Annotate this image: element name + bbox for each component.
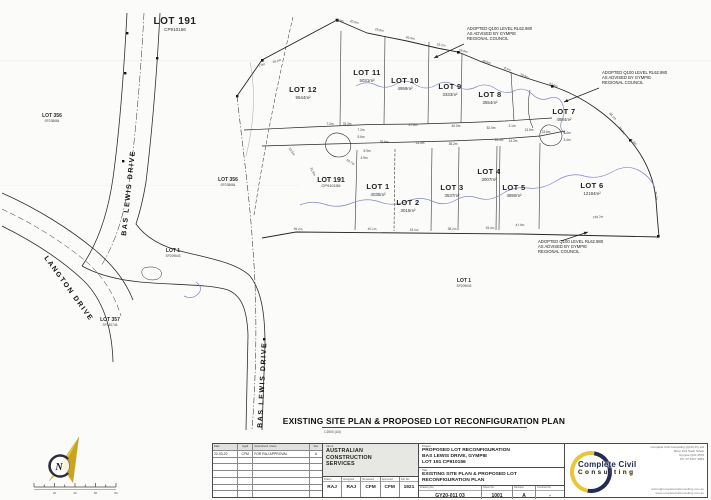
scale-bar	[34, 483, 116, 490]
dimension-label: 40.0m	[452, 124, 461, 128]
road-kerb	[136, 13, 265, 430]
revision-row-empty	[213, 458, 322, 465]
lot-area-label: 3537m²	[445, 193, 460, 198]
title-block: Date Appd Amendment / Issue Rev 22-03-22…	[212, 443, 708, 498]
road-kerb	[2, 226, 113, 362]
personnel-strip: Drawn RAJ Designed RAJ Reviewed CFM Appr…	[323, 476, 418, 497]
dimension-label: 3.4m	[563, 138, 570, 142]
drawing-sheet: LOT 191CP910156LOT 356SP238664LOT 356SP2…	[0, 0, 711, 500]
dimension-label: 20.0m	[349, 19, 359, 25]
dimension-label: 33.4m	[486, 226, 495, 230]
street-name-label: LANGTON DRIVE	[42, 255, 94, 323]
drawing-number-cell: Drawing No. GY20-011 03	[419, 486, 482, 499]
parcel-name-label: LOT 191	[154, 16, 197, 27]
dimension-label: 28.6m	[380, 140, 389, 144]
lot-area-label: 5031m²	[360, 78, 375, 83]
flood-note-text: ADOPTED Q100 LEVEL RL62.980AS ADVISED BY…	[602, 70, 668, 85]
dimension-label: 139.7m	[593, 215, 604, 220]
personnel-drawn: Drawn RAJ	[323, 477, 342, 497]
revision-description: FOR RAJ APPROVAL	[253, 451, 310, 457]
company-wordmark-line1: Complete Civil	[578, 461, 668, 469]
revision-row-empty	[213, 485, 322, 492]
road-kerb	[82, 13, 127, 266]
dimension-label: 14.2m	[509, 139, 518, 143]
dimension-label: 38.2m	[449, 142, 458, 146]
dimension-label: 84.1m	[608, 112, 617, 121]
flood-note-text: ADOPTED Q100 LEVEL RL62.980AS ADVISED BY…	[538, 239, 604, 254]
company-links: admin@completecivilconsulting.com.au www…	[651, 488, 704, 496]
lot-name-label: LOT 6	[580, 181, 603, 190]
dimension-label: 29.9m	[520, 73, 530, 80]
flood-note-text: ADOPTED Q100 LEVEL RL62.980AS ADVISED BY…	[467, 26, 533, 41]
lot-area-label: 3333m²	[443, 92, 458, 97]
dimension-label: 69.2m	[294, 227, 303, 231]
personnel-value: CFM	[381, 482, 399, 490]
dimension-label: 49.5m	[481, 59, 491, 66]
dimension-label: 50.7m	[346, 158, 356, 166]
company-details: Complete Civil Consulting (QLD) Pty Ltd …	[650, 446, 704, 462]
drawing-number-value: GY20-011 03	[419, 491, 481, 499]
contract-value: -	[536, 491, 564, 499]
personnel-job: Job No. 1921	[400, 477, 418, 497]
dimension-label: 33.5m	[416, 141, 425, 145]
revision-row-empty	[213, 478, 322, 485]
revision-table: Date Appd Amendment / Issue Rev 22-03-22…	[213, 444, 323, 497]
stamp-row: Drawing No. GY20-011 03 Sheet No. 1001 R…	[419, 486, 564, 499]
proposed-lot-labels: LOT 129544m²LOT 115031m²LOT 104959m²LOT …	[289, 68, 604, 213]
lot-area-label: 4984m²	[557, 117, 572, 122]
dimension-label: 19.1m	[272, 58, 282, 64]
project-block: Project PROPOSED LOT RECONFIGURATION BAS…	[419, 444, 565, 497]
dimension-label: 45.1m	[368, 227, 377, 231]
dimension-label: 7.2m	[326, 122, 333, 126]
dimension-label: 5.4m	[563, 131, 570, 135]
scan-line	[0, 185, 300, 186]
scale-bar-number: 80	[114, 491, 118, 495]
dimension-label: 7.2m	[357, 128, 364, 132]
scale-bar-number: 60	[94, 491, 98, 495]
subdivision-boundary	[237, 20, 659, 238]
sheet-number-cell: Sheet No. 1001	[482, 486, 513, 499]
revision-approved: CFM	[238, 451, 253, 457]
dimension-label: 47.8m	[409, 123, 418, 127]
street-labels: BAS LEWIS DRIVELANGTON DRIVEBAS LEWIS DR…	[42, 150, 268, 428]
lot-name-label: LOT 10	[391, 76, 419, 85]
lot-name-label: LOT 3	[440, 183, 463, 192]
personnel-value: RAJ	[323, 482, 341, 490]
revision-header-description: Amendment / Issue	[253, 444, 310, 450]
company-detail-line: Ph. 07 5417 4053	[650, 458, 704, 462]
project-cell: Project PROPOSED LOT RECONFIGURATION BAS…	[419, 444, 564, 468]
dimension-label: 7.0m	[258, 62, 266, 68]
revision-header-approved: Appd	[238, 444, 253, 450]
dimension-label: 47.9m	[515, 223, 524, 227]
plan-scale-note: 1:2000 (A3)	[324, 430, 341, 434]
company-wordmark: Complete Civil Consulting	[578, 461, 668, 476]
north-arrow: N	[49, 437, 80, 483]
lot-area-label: 9544m²	[296, 95, 311, 100]
leader-arrowhead	[434, 55, 438, 58]
parcel-plan-number: SP238664	[45, 119, 60, 123]
lot-area-label: 12184m²	[583, 191, 601, 196]
sheet-number-value: 1001	[482, 491, 512, 499]
dimension-label: 14.5m	[495, 138, 504, 142]
lot-name-label: LOT 4	[477, 167, 501, 176]
dimension-label: 29.9m	[374, 27, 384, 33]
lot-name-label: LOT 7	[552, 107, 575, 116]
scale-bar-number: 20	[53, 491, 57, 495]
internal-road-edge	[244, 118, 552, 130]
revision-row: 22-03-22 CFM FOR RAJ APPROVAL A	[213, 451, 322, 458]
lot-name-label: LOT 11	[353, 68, 380, 77]
dimension-label: 52.5m	[288, 147, 297, 157]
street-name-label: BAS LEWIS DRIVE	[257, 342, 269, 428]
personnel-reviewed: Reviewed CFM	[361, 477, 380, 497]
dimension-label: 38.2m	[448, 227, 457, 231]
traffic-island	[142, 267, 162, 280]
contour-line	[246, 62, 253, 156]
lot-area-label: 4035m²	[371, 192, 386, 197]
company-website: www.completecivilconsulting.com.au	[651, 492, 704, 496]
scale-bar-labels: 20406080	[53, 491, 118, 495]
site-plan-canvas: LOT 191CP910156LOT 356SP238664LOT 356SP2…	[0, 0, 711, 500]
client-block: Client AUSTRALIAN CONSTRUCTION SERVICES …	[323, 444, 419, 497]
dimension-label: 3.1m	[508, 124, 515, 128]
road-linework	[2, 13, 265, 430]
existing-parcel-labels: LOT 191CP910156LOT 356SP238664LOT 356SP2…	[42, 16, 472, 327]
revision-header-rev: Rev	[310, 444, 322, 450]
project-line: LOT 191 CP910156	[422, 460, 561, 466]
personnel-value: 1921	[400, 482, 418, 490]
parcel-plan-number: SP209643	[166, 254, 181, 258]
lot-area-label: 4890m²	[507, 193, 522, 198]
parcel-plan-number: SP182746	[103, 323, 118, 327]
dimension-label: 13.5m	[525, 128, 534, 132]
parcel-plan-number: CP910156	[322, 183, 342, 188]
dimension-label: 76.7m	[653, 191, 658, 201]
cadastral-centerline	[237, 96, 256, 430]
leader-line	[564, 88, 599, 102]
client-line: SERVICES	[326, 461, 415, 467]
dimension-label: 78.3m	[343, 122, 352, 126]
dimension-label: 31.9m	[309, 167, 317, 177]
dimension-label: 53.2m	[436, 42, 446, 47]
revision-header-date: Date	[213, 444, 238, 450]
sheet-title-cell: Title EXISTING SITE PLAN & PROPOSED LOT …	[419, 468, 564, 486]
dimension-label: 5.6m	[357, 135, 364, 139]
personnel-designed: Designed RAJ	[342, 477, 361, 497]
sheet-title-line: RECONFIGURATION PLAN	[422, 478, 561, 484]
personnel-approved: Approved CFM	[381, 477, 400, 497]
lot-name-label: LOT 8	[478, 90, 501, 99]
lot-name-label: LOT 2	[396, 198, 419, 207]
revision-row-empty	[213, 491, 322, 497]
company-wordmark-line2: Consulting	[578, 469, 668, 476]
lot-area-label: 3554m²	[483, 100, 498, 105]
culdesac-bulb	[325, 133, 350, 157]
lot-area-label: 3007m²	[482, 177, 497, 182]
survey-markers	[122, 19, 660, 340]
contract-cell: Contract No. -	[536, 486, 564, 499]
dimension-label: 23.6m	[542, 130, 551, 134]
creek-line	[184, 282, 201, 298]
north-arrow-n: N	[54, 462, 63, 473]
leader-arrowhead	[584, 232, 588, 235]
road-kerb	[82, 266, 248, 430]
dimension-label: 49.4m	[405, 35, 415, 41]
scan-line	[0, 61, 711, 62]
dimension-label: 16.1m	[334, 17, 344, 24]
lot-name-label: LOT 12	[289, 85, 317, 94]
client-cell: Client AUSTRALIAN CONSTRUCTION SERVICES	[323, 444, 418, 476]
revision-header-row: Date Appd Amendment / Issue Rev	[213, 444, 322, 451]
lot-name-label: LOT 1	[366, 182, 389, 191]
parcel-plan-number: SP209643	[457, 284, 472, 288]
revision-letter: A	[310, 451, 322, 457]
lot-name-label: LOT 5	[502, 183, 525, 192]
plan-title: EXISTING SITE PLAN & PROPOSED LOT RECONF…	[283, 416, 565, 426]
lot-area-label: 3015m²	[401, 208, 416, 213]
revision-cell: Revision A	[513, 486, 536, 499]
revision-date: 22-03-22	[213, 451, 238, 457]
company-block: Complete Civil Consulting Complete Civil…	[565, 444, 707, 497]
personnel-value: CFM	[361, 482, 379, 490]
internal-road-edge	[262, 131, 565, 146]
lot-area-label: 4959m²	[398, 86, 413, 91]
dimension-label: 4.9m	[360, 156, 367, 160]
scale-bar-number: 40	[73, 491, 77, 495]
dimension-label: 52.0m	[487, 126, 496, 130]
dimension-label: 5.9m	[363, 149, 370, 153]
dimension-label: 33.5m	[410, 228, 419, 232]
lot-name-label: LOT 9	[438, 82, 461, 91]
personnel-value: RAJ	[342, 482, 360, 490]
revision-row-empty	[213, 471, 322, 478]
street-name-label: BAS LEWIS DRIVE	[121, 150, 137, 236]
parcel-plan-number: SP238664	[221, 183, 236, 187]
parcel-plan-number: CP910156	[164, 27, 186, 32]
revision-value: A	[513, 491, 535, 499]
leader-arrowhead	[564, 99, 568, 102]
revision-row-empty	[213, 464, 322, 471]
